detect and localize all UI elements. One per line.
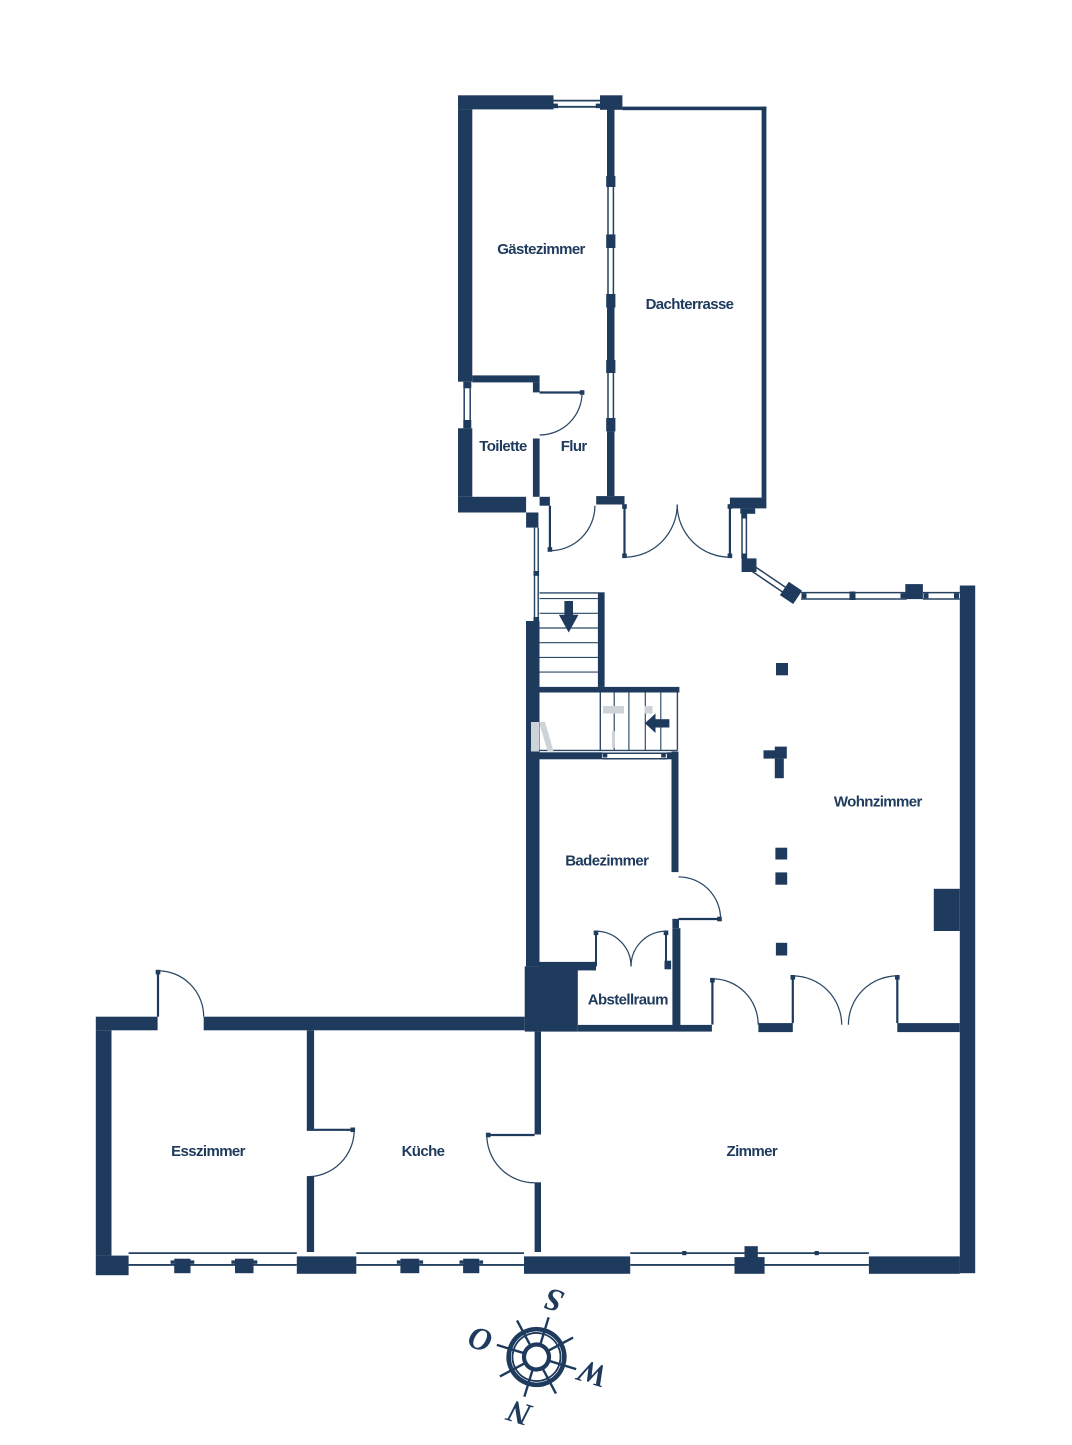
svg-text:Wohnzimmer: Wohnzimmer [834, 794, 923, 811]
svg-text:Esszimmer: Esszimmer [171, 1143, 246, 1160]
svg-text:Flur: Flur [561, 438, 588, 455]
svg-text:Dachterrasse: Dachterrasse [646, 296, 734, 313]
svg-text:Badezimmer: Badezimmer [565, 852, 649, 869]
svg-text:Toilette: Toilette [479, 438, 527, 455]
svg-text:Küche: Küche [402, 1143, 445, 1160]
svg-text:Zimmer: Zimmer [727, 1143, 778, 1160]
svg-text:Abstellraum: Abstellraum [588, 991, 668, 1008]
svg-text:Gästezimmer: Gästezimmer [497, 241, 585, 258]
